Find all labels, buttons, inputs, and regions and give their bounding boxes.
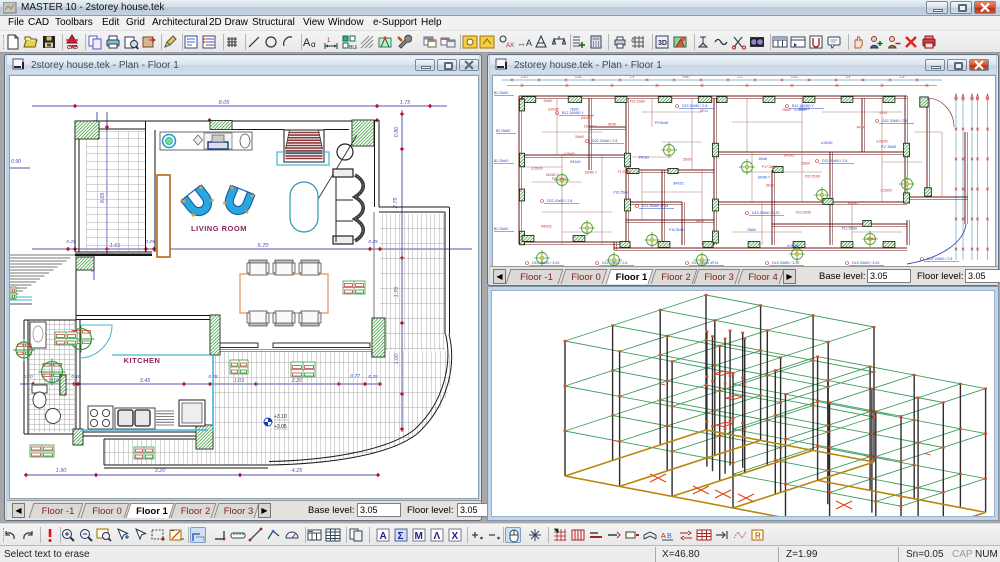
svg-text:LIVING ROOM: LIVING ROOM xyxy=(191,224,247,233)
svg-text:8.05: 8.05 xyxy=(219,100,231,106)
svg-text:P12 25x60: P12 25x60 xyxy=(842,227,857,231)
svg-text:R: R xyxy=(755,532,761,541)
svg-text:8Φ16/2: 8Φ16/2 xyxy=(581,116,592,120)
svg-text:4Φ14: 4Φ14 xyxy=(700,109,708,113)
svg-text:25x60: 25x60 xyxy=(747,228,756,232)
svg-text:25x60: 25x60 xyxy=(766,184,775,188)
svg-text:3.25: 3.25 xyxy=(575,76,582,79)
svg-text:↔A: ↔A xyxy=(517,38,532,48)
svg-text:d:25x50: d:25x50 xyxy=(821,141,833,145)
svg-text:A: A xyxy=(661,533,666,540)
svg-text:160/60 Y: 160/60 Y xyxy=(584,125,598,129)
svg-text:P16 25x60: P16 25x60 xyxy=(630,100,645,104)
svg-text:2.2: 2.2 xyxy=(738,76,743,79)
svg-text:d:25x50: d:25x50 xyxy=(531,166,543,170)
svg-text:8Φ16/2: 8Φ16/2 xyxy=(673,182,684,186)
svg-text:D22 20x50 / 2.8: D22 20x50 / 2.8 xyxy=(547,199,572,203)
svg-text:A: A xyxy=(380,531,387,542)
svg-text:P17 25x60: P17 25x60 xyxy=(881,145,896,149)
svg-text:3D: 3D xyxy=(658,40,667,47)
svg-text:3.20: 3.20 xyxy=(155,468,167,474)
svg-text:4Φ14: 4Φ14 xyxy=(879,111,887,115)
svg-text:B: B xyxy=(667,533,672,540)
svg-text:4.25: 4.25 xyxy=(292,468,304,474)
svg-text:D15 25x50 / 3.20: D15 25x50 / 3.20 xyxy=(532,261,559,265)
svg-text:25x60: 25x60 xyxy=(866,237,875,241)
svg-text:K21 25x60 4F14: K21 25x60 4F14 xyxy=(642,204,668,208)
svg-text:1.70: 1.70 xyxy=(394,286,400,298)
svg-text:Σ: Σ xyxy=(398,531,404,542)
svg-text:0.25: 0.25 xyxy=(368,239,378,245)
svg-text:8Φ16/2: 8Φ16/2 xyxy=(848,201,859,205)
svg-text:+3.10: +3.10 xyxy=(274,414,287,420)
svg-text:B2 25x60: B2 25x60 xyxy=(496,129,510,133)
svg-text:1.4: 1.4 xyxy=(630,76,635,79)
svg-text:0.90: 0.90 xyxy=(11,159,21,165)
svg-text:1.8: 1.8 xyxy=(900,76,905,79)
svg-text:B2 25x60: B2 25x60 xyxy=(494,227,508,231)
svg-text:160/60 Y: 160/60 Y xyxy=(758,176,772,180)
svg-text:25x60: 25x60 xyxy=(683,157,692,161)
svg-text:P1 25x60: P1 25x60 xyxy=(618,170,632,174)
svg-text:4Φ14: 4Φ14 xyxy=(857,125,865,129)
svg-text:2.20: 2.20 xyxy=(291,378,304,384)
svg-text:X: X xyxy=(452,531,459,542)
svg-text:25x60: 25x60 xyxy=(801,161,810,165)
svg-text:0.25: 0.25 xyxy=(145,239,155,245)
svg-text:8Φ16/2: 8Φ16/2 xyxy=(639,155,650,159)
svg-text:D22 20x50 / 2.8: D22 20x50 / 2.8 xyxy=(682,104,707,108)
svg-text:25x60: 25x60 xyxy=(575,135,584,139)
svg-text:3.45: 3.45 xyxy=(140,378,152,384)
svg-text:4.60: 4.60 xyxy=(683,76,690,79)
svg-text:P16 25x60: P16 25x60 xyxy=(669,228,684,232)
svg-text:9.65: 9.65 xyxy=(100,192,106,204)
svg-text:d:25x50: d:25x50 xyxy=(876,140,888,144)
svg-text:1.75: 1.75 xyxy=(400,100,412,106)
svg-text:8Φ16/2: 8Φ16/2 xyxy=(570,160,581,164)
svg-text:P23 25x60: P23 25x60 xyxy=(796,211,811,215)
svg-text:25x60: 25x60 xyxy=(544,99,553,103)
svg-text:P16 25x60: P16 25x60 xyxy=(614,191,629,195)
svg-text:d:25x50: d:25x50 xyxy=(548,108,560,112)
svg-text:4Φ14: 4Φ14 xyxy=(696,220,704,224)
svg-text:25x60: 25x60 xyxy=(759,157,768,161)
svg-text:1.65: 1.65 xyxy=(110,243,122,249)
svg-text:D15 25x50 / 3.20: D15 25x50 / 3.20 xyxy=(772,261,799,265)
svg-text:P9 25x60: P9 25x60 xyxy=(655,121,669,125)
svg-text:#: # xyxy=(631,38,635,44)
svg-text:D15 25x50 / 3.20: D15 25x50 / 3.20 xyxy=(752,211,779,215)
svg-text:160/60 Y: 160/60 Y xyxy=(584,170,598,174)
svg-text:D22 20x50 / 2.8: D22 20x50 / 2.8 xyxy=(822,159,847,163)
svg-text:8Φ16/2: 8Φ16/2 xyxy=(784,153,795,157)
svg-text:A: A xyxy=(303,37,311,49)
svg-text:Λ: Λ xyxy=(434,531,441,542)
svg-text:2.10: 2.10 xyxy=(521,76,528,79)
svg-text:3.15: 3.15 xyxy=(791,76,798,79)
svg-text:d:25x50: d:25x50 xyxy=(564,152,576,156)
svg-text:1: 1 xyxy=(327,38,331,44)
svg-text:D22 20x50 / 2.8: D22 20x50 / 2.8 xyxy=(602,261,627,265)
svg-text:B2 25x60: B2 25x60 xyxy=(494,159,508,163)
svg-text:5.70: 5.70 xyxy=(258,243,270,249)
svg-text:P20 25x60: P20 25x60 xyxy=(552,177,567,181)
svg-text:25x60: 25x60 xyxy=(608,123,617,127)
svg-text:1.90: 1.90 xyxy=(56,468,68,474)
svg-text:d:25x50: d:25x50 xyxy=(787,244,799,248)
svg-text:8Φ16/2: 8Φ16/2 xyxy=(541,224,552,228)
svg-text:0.80: 0.80 xyxy=(394,126,400,138)
svg-text:2.4: 2.4 xyxy=(846,76,851,79)
svg-text:KITCHEN: KITCHEN xyxy=(124,356,161,365)
svg-text:CAD: CAD xyxy=(67,45,78,50)
svg-text:P17 25x60: P17 25x60 xyxy=(762,165,777,169)
svg-text:D22 20x50 / 2.8: D22 20x50 / 2.8 xyxy=(592,139,617,143)
svg-text:B12 160/60 Y: B12 160/60 Y xyxy=(792,104,814,108)
svg-text:D22 20x50 / 2.8: D22 20x50 / 2.8 xyxy=(882,119,907,123)
svg-text:K21 25x60 4F14: K21 25x60 4F14 xyxy=(692,261,718,265)
svg-text:M: M xyxy=(415,531,423,542)
svg-text:B2 25x60: B2 25x60 xyxy=(494,91,508,95)
svg-text:AX: AX xyxy=(506,43,514,49)
svg-text:P20 25x60: P20 25x60 xyxy=(805,174,820,178)
svg-text:B12 160/60 Y: B12 160/60 Y xyxy=(562,111,584,115)
svg-text:α: α xyxy=(311,40,316,49)
svg-text:BLE: BLE xyxy=(349,45,357,50)
svg-text:D15 25x50 / 3.20: D15 25x50 / 3.20 xyxy=(852,261,879,265)
svg-text:d:25x50: d:25x50 xyxy=(880,189,892,193)
svg-text:160/60 Y: 160/60 Y xyxy=(546,173,560,177)
